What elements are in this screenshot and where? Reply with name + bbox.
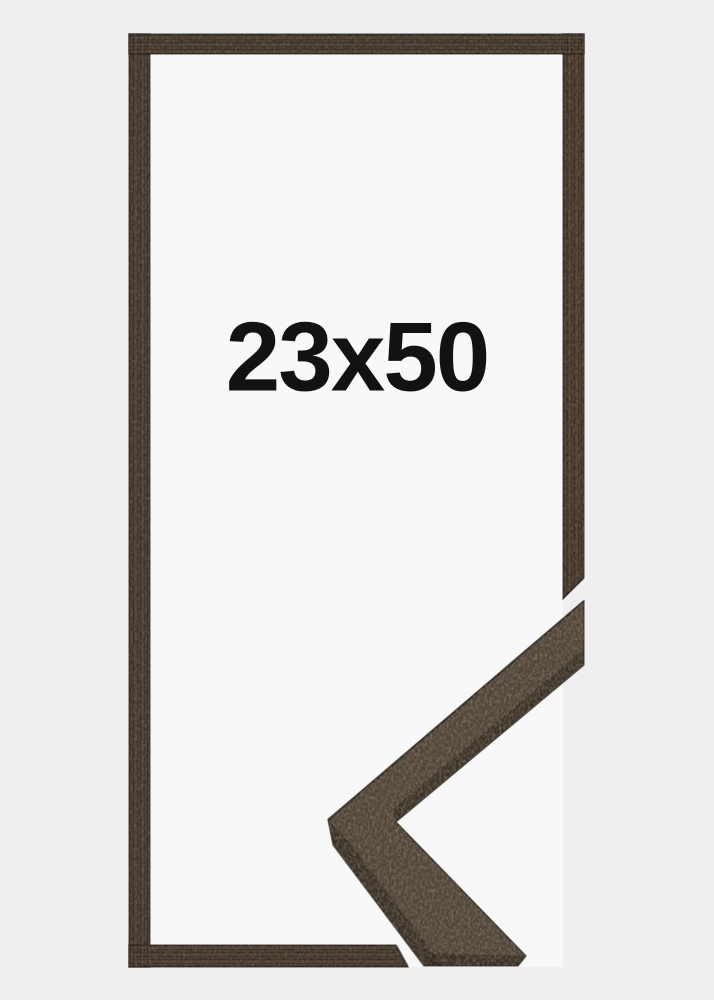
- frame-graphic: [0, 0, 714, 1000]
- frame-product-image: 23x50: [0, 0, 714, 1000]
- frame-size-label: 23x50: [226, 301, 489, 414]
